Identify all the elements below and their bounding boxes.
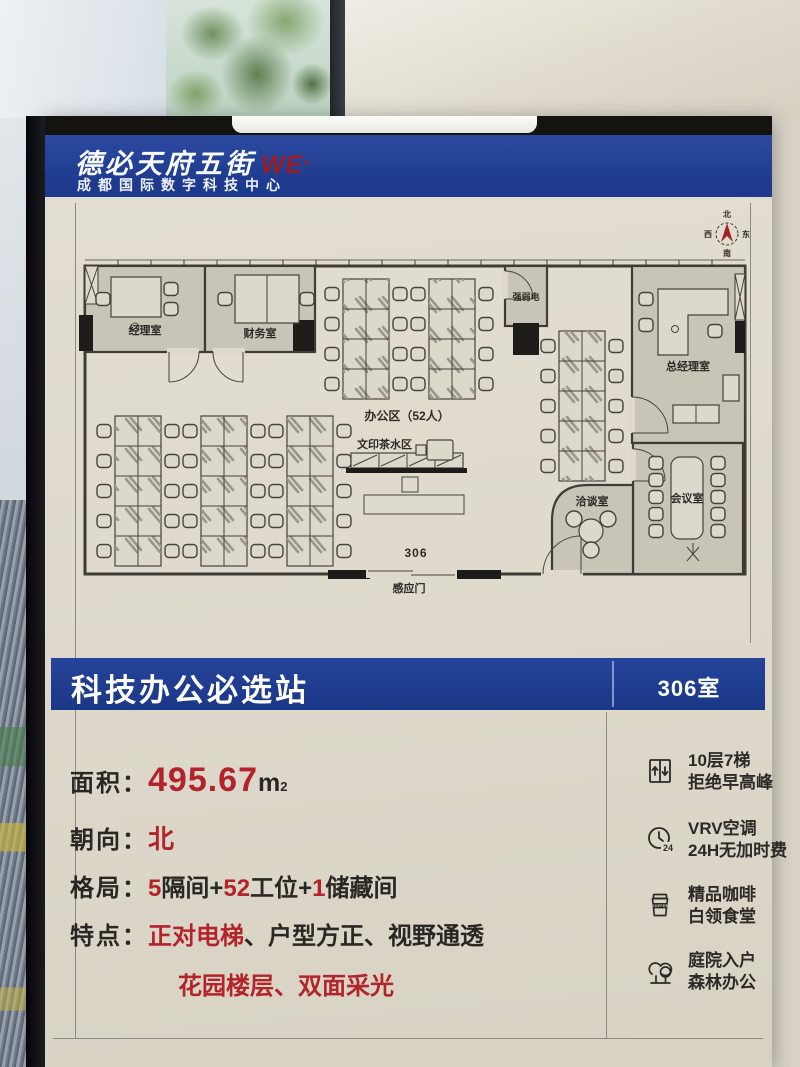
amenity-hvac: 24 VRV空调 24H无加时费 <box>643 818 769 863</box>
floor-plan: 经理室 财务室 办公区（52人） 强弱电 总经理室 会议室 洽谈室 文印茶水区 … <box>75 201 755 644</box>
compass-east: 东 <box>742 229 750 239</box>
label-print-tea: 文印茶水区 <box>357 437 412 451</box>
brand-we-plus: + <box>303 156 310 170</box>
compass: 北 西 东 南 <box>704 209 750 258</box>
spec-facing-label: 朝向： <box>70 820 148 855</box>
compass-south: 南 <box>723 248 731 258</box>
spec-area-unit: m <box>258 769 280 798</box>
amenity-garden: 庭院入户 森林办公 <box>643 950 769 995</box>
workstations-right <box>541 331 623 481</box>
svg-text:COFFEE: COFFEE <box>652 905 669 909</box>
spec-layout-n1: 5 <box>148 875 161 903</box>
spec-area-sup: 2 <box>280 779 287 794</box>
background-wall-right <box>345 0 800 120</box>
spec-layout-t1: 隔间+ <box>161 868 223 903</box>
spec-area: 面积： 495.67 m 2 <box>70 761 287 800</box>
label-sensor-door: 感应门 <box>393 581 426 595</box>
amenity-line1: 精品咖啡 <box>688 884 756 906</box>
glass-reflection-tab <box>232 116 537 133</box>
spec-facing: 朝向： 北 <box>70 819 174 856</box>
striped-carpet <box>0 500 28 1067</box>
label-negotiation: 洽谈室 <box>576 494 609 508</box>
amenity-line2: 白领食堂 <box>688 906 756 928</box>
workstations-bottom <box>97 416 351 566</box>
label-finance: 财务室 <box>243 326 277 340</box>
spec-layout: 格局： 5 隔间+ 52 工位+ 1 储藏间 <box>70 868 397 903</box>
leasing-poster: 德必天府五街WE+ 成都国际数字科技中心 <box>45 116 772 1067</box>
bottom-rule <box>53 1038 763 1039</box>
brand-subtitle: 成都国际数字科技中心 <box>77 175 287 195</box>
coffee-icon: COFFEE <box>643 889 677 923</box>
label-manager: 经理室 <box>129 323 162 337</box>
amenity-line1: VRV空调 <box>688 818 787 840</box>
print-tea-furniture <box>346 440 467 514</box>
label-utility: 强弱电 <box>512 291 539 302</box>
trees-icon <box>643 955 677 989</box>
details-divider <box>606 712 607 1038</box>
headline-title: 科技办公必选站 <box>71 665 309 710</box>
side-wall <box>0 118 28 538</box>
spec-features-line2: 花园楼层、双面采光 <box>178 966 394 1001</box>
amenity-line2: 24H无加时费 <box>688 840 787 862</box>
elevator-icon <box>643 755 677 789</box>
label-meeting: 会议室 <box>671 491 704 505</box>
amenity-line1: 庭院入户 <box>688 950 756 972</box>
label-room-number: 306 <box>404 546 427 560</box>
compass-north: 北 <box>723 209 731 219</box>
headline-banner: 科技办公必选站 306室 <box>51 658 765 710</box>
label-office-area: 办公区（52人） <box>364 408 449 423</box>
spec-feature-rest: 、户型方正、视野通透 <box>244 916 484 951</box>
workstations-top <box>325 279 493 399</box>
amenity-line2: 森林办公 <box>688 972 756 994</box>
amenity-coffee: COFFEE 精品咖啡 白领食堂 <box>643 884 769 929</box>
window-with-trees <box>166 0 332 120</box>
spec-features-label: 特点： <box>70 916 148 951</box>
spec-layout-n2: 52 <box>223 875 250 903</box>
brand-header: 德必天府五街WE+ 成都国际数字科技中心 <box>45 135 772 197</box>
spec-facing-value: 北 <box>148 819 174 856</box>
amenity-line1: 10层7梯 <box>688 750 773 772</box>
label-gm: 总经理室 <box>666 359 710 373</box>
spec-layout-t3: 储藏间 <box>325 868 397 903</box>
spec-area-value: 495.67 <box>148 761 258 800</box>
spec-layout-n3: 1 <box>312 875 325 903</box>
spec-layout-label: 格局： <box>70 868 148 903</box>
spec-layout-t2: 工位+ <box>250 868 312 903</box>
svg-text:24: 24 <box>663 843 673 853</box>
clock-24-icon: 24 <box>643 823 677 857</box>
amenity-line2: 拒绝早高峰 <box>688 772 773 794</box>
compass-west: 西 <box>704 230 712 239</box>
spec-features: 特点： 正对电梯 、户型方正、视野通透 <box>70 916 484 951</box>
spec-feature-red: 正对电梯 <box>148 916 244 951</box>
spec-feature-line2: 花园楼层、双面采光 <box>178 966 394 1001</box>
poster-left-frame <box>26 116 47 1067</box>
background-wall-left <box>0 0 168 120</box>
spec-area-label: 面积： <box>70 763 148 798</box>
banner-room-number: 306室 <box>614 671 764 703</box>
window-frame <box>330 0 345 120</box>
amenity-elevator: 10层7梯 拒绝早高峰 <box>643 750 769 795</box>
